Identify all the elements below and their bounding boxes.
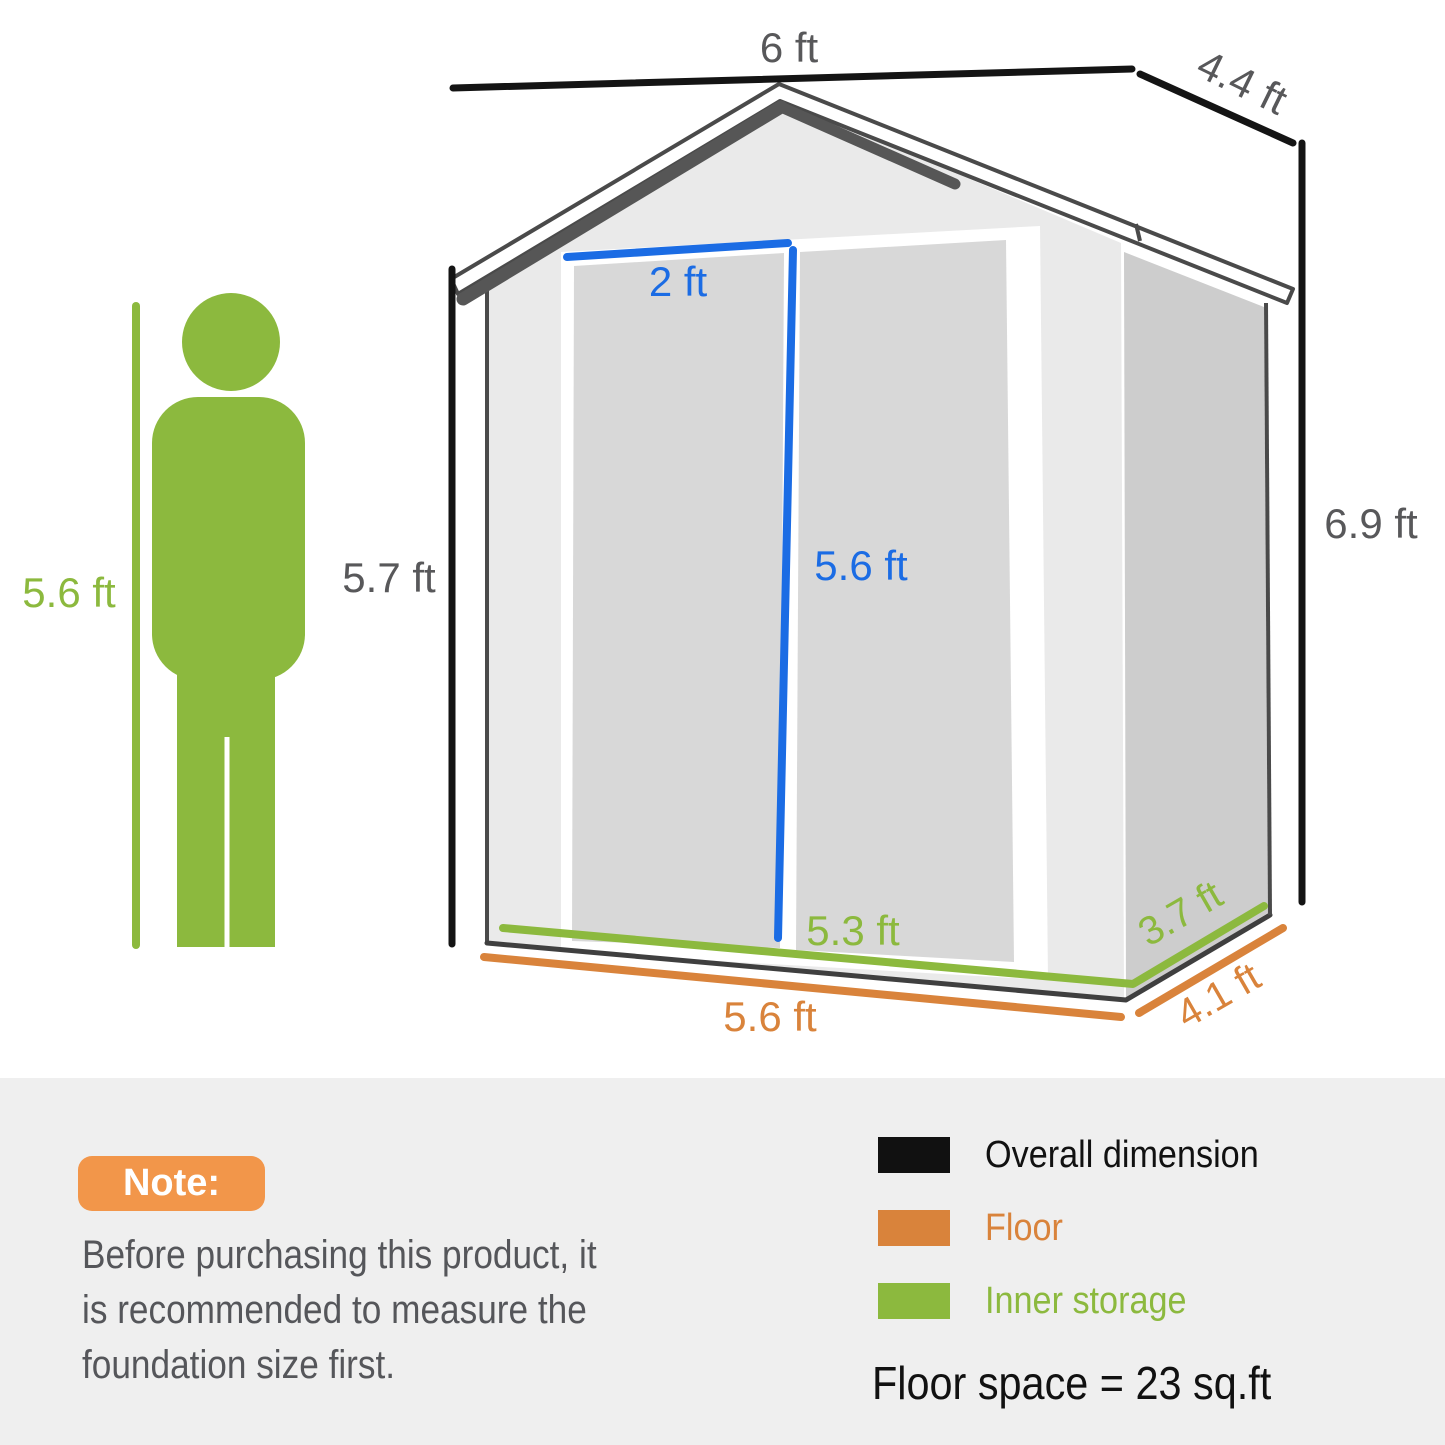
note-badge: Note: (78, 1156, 265, 1211)
overall-dimension-label: Overall dimension (985, 1134, 1259, 1177)
floor-swatch (878, 1210, 950, 1246)
dim-line-top-width (453, 69, 1132, 88)
legend-row-inner-storage: Inner storage (878, 1283, 1289, 1319)
legend-row-floor: Floor (878, 1210, 1289, 1246)
label-overall-height: 6.9 ft (1324, 500, 1418, 547)
floor-space-text: Floor space = 23 sq.ft (872, 1356, 1271, 1410)
label-front-height: 5.7 ft (342, 554, 436, 601)
label-inner-width: 5.3 ft (806, 907, 900, 954)
overall-dimension-swatch (878, 1137, 950, 1173)
note-text: Before purchasing this product, it is re… (82, 1228, 597, 1393)
label-door-width: 2 ft (649, 258, 708, 305)
inner-storage-swatch (878, 1283, 950, 1319)
label-door-height: 5.6 ft (814, 542, 908, 589)
label-top-depth: 4.4 ft (1190, 40, 1295, 123)
label-floor-width: 5.6 ft (723, 993, 817, 1040)
label-top-width: 6 ft (760, 24, 819, 71)
label-person-height: 5.6 ft (22, 569, 116, 616)
note-line-2: is recommended to measure the (82, 1283, 597, 1338)
inner-storage-label: Inner storage (985, 1280, 1187, 1323)
shed-dimension-infographic: 6 ft 4.4 ft 6.9 ft 5.7 ft 5.6 ft 2 ft 5.… (0, 0, 1445, 1445)
door-panel-left (572, 253, 784, 948)
legend-row-overall-dimension: Overall dimension (878, 1137, 1289, 1173)
floor-label: Floor (985, 1207, 1063, 1250)
legend: Overall dimension Floor Inner storage (878, 1137, 1289, 1356)
door-panel-right (796, 240, 1014, 962)
note-line-3: foundation size first. (82, 1338, 597, 1393)
note-line-1: Before purchasing this product, it (82, 1228, 597, 1283)
shed-diagram: 6 ft 4.4 ft 6.9 ft 5.7 ft 5.6 ft 2 ft 5.… (0, 0, 1445, 1078)
info-panel: Note: Before purchasing this product, it… (0, 1078, 1445, 1445)
person-head (182, 293, 280, 391)
person-body (152, 397, 305, 680)
